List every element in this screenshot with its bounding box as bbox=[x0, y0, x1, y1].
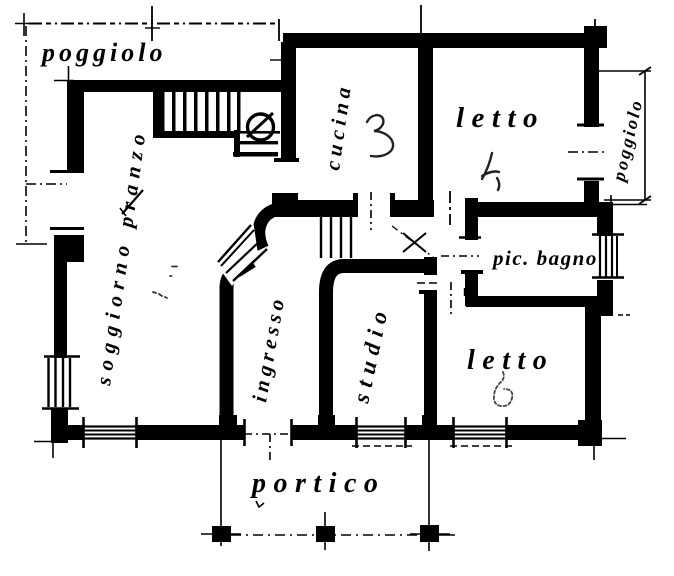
svg-text:letto: letto bbox=[467, 345, 554, 376]
svg-text:portico: portico bbox=[250, 468, 385, 499]
svg-text:letto: letto bbox=[456, 102, 545, 134]
svg-text:poggiolo: poggiolo bbox=[40, 38, 166, 67]
svg-text:pic. bagno: pic. bagno bbox=[491, 246, 598, 270]
